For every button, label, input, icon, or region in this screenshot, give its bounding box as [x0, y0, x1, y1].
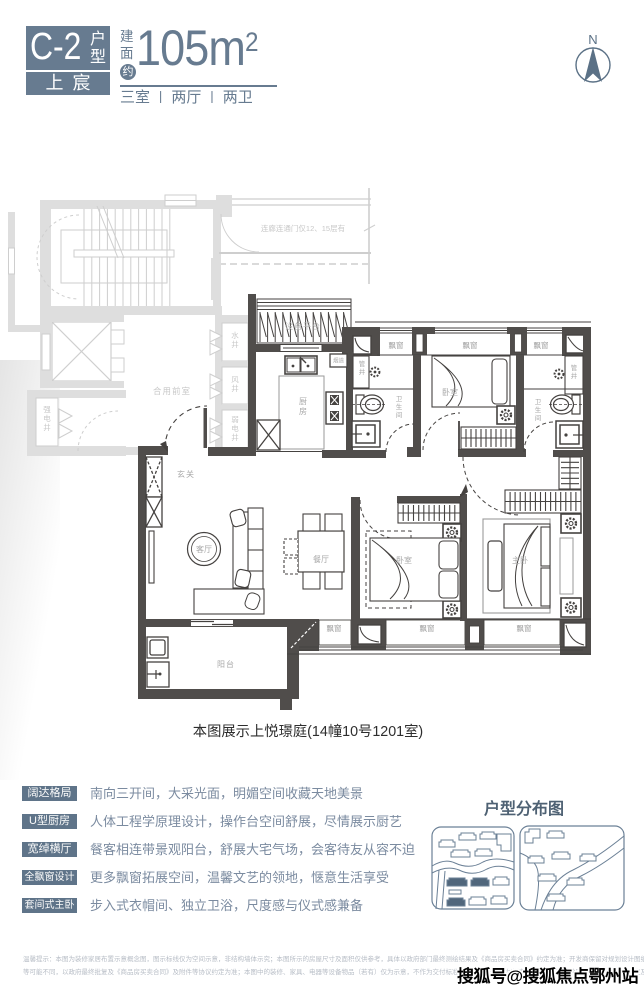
- svg-text:卧室: 卧室: [396, 555, 412, 565]
- svg-text:卫生间: 卫生间: [396, 395, 403, 419]
- svg-text:风井: 风井: [231, 375, 239, 393]
- svg-text:卫生间: 卫生间: [535, 398, 542, 422]
- svg-text:设备平台: 设备平台: [285, 321, 321, 331]
- svg-text:管井: 管井: [571, 363, 578, 380]
- svg-text:水井: 水井: [231, 330, 239, 349]
- svg-text:厨房: 厨房: [299, 397, 307, 416]
- svg-text:主卧: 主卧: [512, 555, 528, 565]
- svg-text:餐厅: 餐厅: [313, 555, 329, 564]
- svg-text:飘窗: 飘窗: [534, 340, 549, 350]
- svg-text:连廊连通门仅12、15层有: 连廊连通门仅12、15层有: [261, 223, 346, 233]
- svg-text:飘窗: 飘窗: [389, 340, 404, 350]
- svg-text:管井: 管井: [359, 359, 366, 376]
- svg-text:客厅: 客厅: [196, 544, 212, 554]
- svg-text:玄关: 玄关: [177, 469, 195, 479]
- svg-text:飘窗: 飘窗: [463, 340, 478, 350]
- svg-text:飘窗: 飘窗: [420, 623, 435, 633]
- svg-text:强电井: 强电井: [43, 405, 51, 432]
- svg-text:合用前室: 合用前室: [153, 386, 191, 396]
- svg-text:烟道: 烟道: [333, 357, 345, 365]
- svg-text:阳台: 阳台: [217, 659, 235, 669]
- svg-text:飘窗: 飘窗: [327, 623, 342, 633]
- svg-text:卧室: 卧室: [442, 387, 458, 397]
- svg-text:飘窗: 飘窗: [517, 623, 532, 633]
- svg-text:弱电井: 弱电井: [231, 415, 239, 442]
